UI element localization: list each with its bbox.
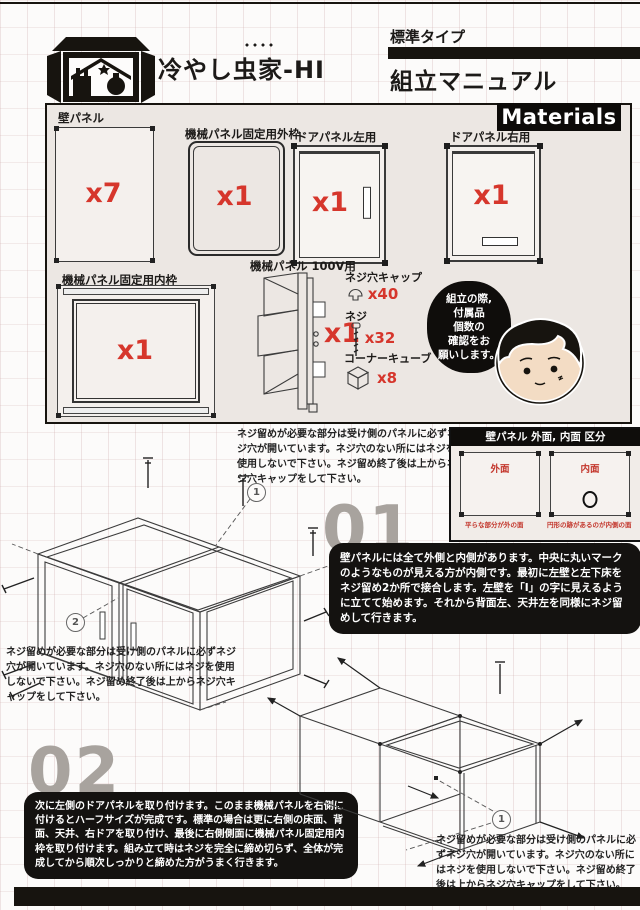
corner-mark: [459, 451, 464, 456]
frame-assembly-diagram: [288, 608, 640, 856]
top-rule: [0, 2, 640, 4]
callout-1-step1: 1: [247, 483, 266, 502]
part-count-wall-panel: x7: [55, 127, 152, 260]
inner-face-mark-circle: [583, 491, 598, 508]
hardware-count-cube: x8: [372, 368, 402, 388]
hardware-label-cap: ネジ穴キャップ: [345, 269, 422, 285]
hardware-label-cube: コーナーキューブ: [344, 350, 431, 366]
guide-inner-face-panel: 内面: [550, 452, 630, 516]
materials-section-title: Materials: [497, 103, 621, 131]
part-count-inner-frame: x1: [57, 285, 213, 415]
brand-logo-icon: [46, 36, 156, 104]
part-count-door-right: x1: [446, 145, 537, 245]
part-label-door-right: ドアパネル右用: [450, 129, 530, 145]
corner-mark: [536, 512, 541, 517]
inner-face-caption: 円形の跡があるのが内側の面: [547, 519, 632, 529]
corner-tab: [444, 258, 450, 264]
corner-mark: [536, 451, 541, 456]
part-count-outer-frame: x1: [188, 141, 281, 252]
footer-bar: [14, 887, 640, 906]
part-label-outer-frame: 機械パネル固定用外枠: [185, 126, 300, 142]
hardware-count-screw: x32: [363, 328, 397, 348]
guide-outer-face-panel: 外面: [460, 452, 540, 516]
callout-2-step1: 2: [66, 613, 85, 632]
corner-tab: [537, 143, 543, 149]
callout-1-step2: 1: [492, 810, 511, 829]
corner-mark: [459, 512, 464, 517]
furigana-dots: [243, 43, 273, 47]
panel-face-guide: 壁パネル 外面, 内面 区分 外面 内面 平らな部分が外の面 円形の跡があるのが…: [449, 427, 640, 542]
type-label: 標準タイプ: [390, 26, 465, 47]
corner-tab: [382, 260, 388, 266]
corner-mark: [549, 512, 554, 517]
manual-page: 冷やし虫家-HI 標準タイプ 組立マニュアル Materials 壁パネル x7…: [0, 0, 640, 910]
panel-face-guide-title: 壁パネル 外面, 内面 区分: [451, 429, 640, 446]
inner-face-label: 内面: [551, 461, 629, 475]
corner-tab: [537, 258, 543, 264]
machine-panel-drawing: [252, 270, 328, 414]
hardware-count-cap: x40: [366, 284, 400, 304]
corner-mark: [626, 451, 631, 456]
screw-note-left: ネジ留めが必要な部分は受け側のパネルに必ずネジ穴が開いています。ネジ穴のない所に…: [6, 645, 238, 705]
mascot-face: [492, 312, 588, 406]
header-divider-bar: [388, 47, 640, 59]
part-label-wall-panel: 壁パネル: [58, 110, 104, 126]
outer-face-caption: 平らな部分が外の面: [465, 519, 524, 529]
manual-title: 組立マニュアル: [390, 62, 557, 96]
corner-mark: [626, 512, 631, 517]
part-count-door-left: x1: [293, 145, 367, 260]
brand-title: 冷やし虫家-HI: [158, 50, 325, 85]
outer-face-label: 外面: [461, 461, 539, 475]
screw-note-right: ネジ留めが必要な部分は受け側のパネルに必ずネジ穴が開いています。ネジ穴のない所に…: [436, 833, 638, 893]
corner-mark: [549, 451, 554, 456]
corner-cube-icon: [346, 366, 370, 390]
screw-cap-icon: [347, 287, 364, 302]
corner-tab: [382, 143, 388, 149]
part-label-door-left: ドアパネル左用: [296, 129, 376, 145]
